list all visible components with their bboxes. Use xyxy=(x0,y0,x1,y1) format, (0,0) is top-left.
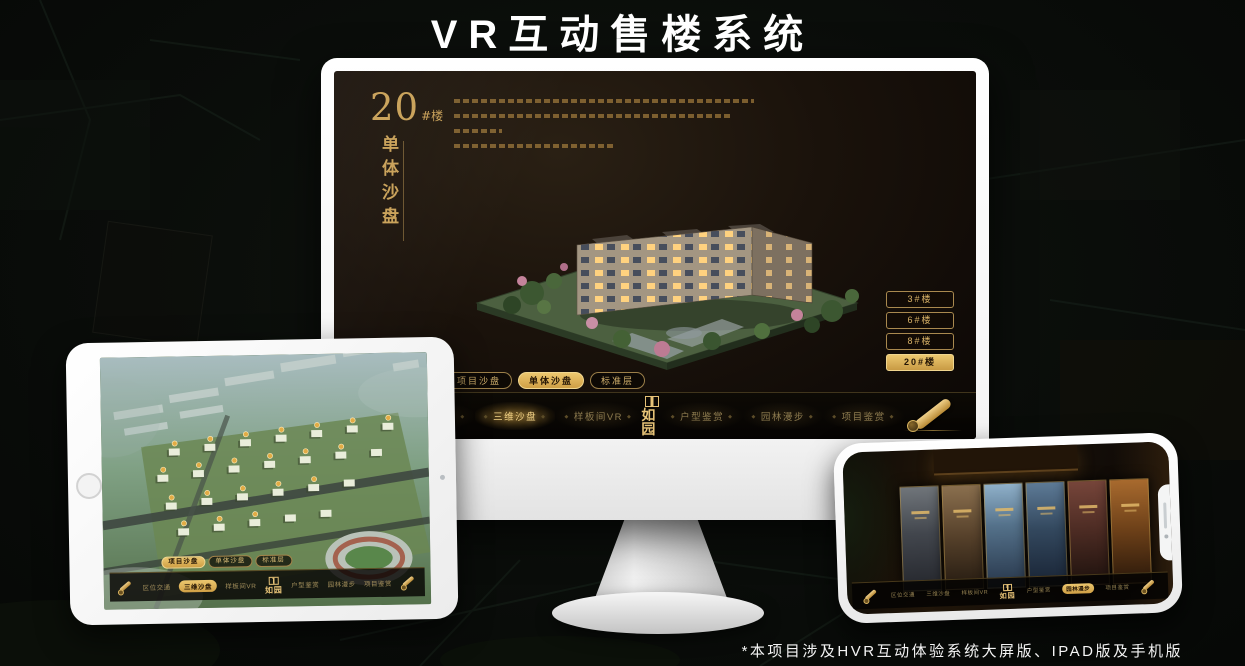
scene-panel-3[interactable] xyxy=(983,482,1026,588)
tablet-map[interactable]: 项目沙盘 单体沙盘 标准层 区位交通 三维沙盘 样板间VR 如园 户型鉴赏 园林… xyxy=(100,352,431,610)
scroll-menu-icon[interactable] xyxy=(1140,577,1157,596)
footnote-text: *本项目涉及HVR互动体验系统大屏版、IPAD版及手机版 xyxy=(742,640,1183,661)
nav-item-3d-sandbox[interactable]: 三维沙盘 xyxy=(926,589,950,598)
scroll-menu-icon[interactable] xyxy=(400,573,416,591)
tablet-subtab-project-sandbox[interactable]: 项目沙盘 xyxy=(161,556,205,569)
nav-item-showroom-vr[interactable]: 样板间VR xyxy=(225,580,256,591)
floor-button-3[interactable]: 3#楼 xyxy=(886,291,954,308)
section-vertical-title: 单体沙盘 xyxy=(376,135,401,231)
scene-panel-4[interactable] xyxy=(1025,481,1068,587)
gold-seal-icon xyxy=(269,576,279,584)
floor-button-8[interactable]: 8#楼 xyxy=(886,333,954,350)
building-headline: 20#楼 xyxy=(370,89,443,126)
nav-item-floorplan[interactable]: 户型鉴赏 xyxy=(662,402,743,430)
nav-item-showroom-vr[interactable]: 样板间VR xyxy=(961,588,988,597)
tablet-nav-bar: 区位交通 三维沙盘 样板间VR 如园 户型鉴赏 园林漫步 项目鉴赏 xyxy=(110,567,425,601)
phone-screen: 区位交通 三维沙盘 样板间VR 如园 户型鉴赏 园林漫步 项目鉴赏 xyxy=(842,441,1173,614)
tablet-subtab-single-sandbox[interactable]: 单体沙盘 xyxy=(208,555,252,568)
brand-name: 如园 xyxy=(1000,591,1016,599)
scene-panel-5[interactable] xyxy=(1067,480,1110,586)
camera-icon xyxy=(1164,534,1168,538)
building-3d-render[interactable] xyxy=(462,163,876,371)
brand-logo: 如园 xyxy=(265,576,283,593)
scroll-menu-icon[interactable] xyxy=(863,587,880,606)
floor-button-6[interactable]: 6#楼 xyxy=(886,312,954,329)
scroll-menu-icon[interactable] xyxy=(904,398,962,434)
nav-label: 样板间VR xyxy=(574,412,623,423)
nav-item-garden-walk[interactable]: 园林漫步 xyxy=(1062,583,1094,594)
brand-logo: 如园 xyxy=(999,583,1016,599)
nav-item-floorplan[interactable]: 户型鉴赏 xyxy=(1027,586,1051,595)
nav-label: 项目鉴赏 xyxy=(842,412,886,423)
scene-panel-2[interactable] xyxy=(941,484,984,590)
scroll-menu-icon[interactable] xyxy=(118,578,134,596)
scene-panel-1[interactable] xyxy=(899,485,942,591)
brand-logo: 如园 xyxy=(641,396,661,437)
nav-item-project-view[interactable]: 项目鉴赏 xyxy=(823,402,904,430)
nav-item-location[interactable]: 区位交通 xyxy=(891,590,915,599)
nav-item-project-view[interactable]: 项目鉴赏 xyxy=(364,578,392,588)
gold-seal-icon xyxy=(645,396,659,407)
nav-item-location[interactable]: 区位交通 xyxy=(143,582,171,592)
sandbox-subtabs: 项目沙盘 单体沙盘 标准层 xyxy=(446,372,645,389)
nav-label: 园林漫步 xyxy=(761,412,805,423)
subtab-project-sandbox[interactable]: 项目沙盘 xyxy=(446,372,512,389)
building-description-lines xyxy=(454,99,754,159)
interior-ceiling-render xyxy=(933,445,1077,476)
tablet-home-button[interactable] xyxy=(76,473,102,499)
tablet-camera-icon xyxy=(440,475,445,480)
subtab-standard-floor[interactable]: 标准层 xyxy=(590,372,645,389)
nav-item-3d-sandbox[interactable]: 三维沙盘 xyxy=(179,580,217,593)
brand-name: 如园 xyxy=(265,585,283,593)
phone-notch xyxy=(1158,484,1174,560)
nav-item-garden-walk[interactable]: 园林漫步 xyxy=(327,578,355,588)
floor-button-20[interactable]: 20#楼 xyxy=(886,354,954,371)
phone-device: 区位交通 三维沙盘 样板间VR 如园 户型鉴赏 园林漫步 项目鉴赏 xyxy=(833,432,1183,624)
tablet-subtabs: 项目沙盘 单体沙盘 标准层 xyxy=(161,554,292,568)
brand-name: 如园 xyxy=(641,409,661,437)
tablet-subtab-standard-floor[interactable]: 标准层 xyxy=(255,554,292,567)
building-number-suffix: #楼 xyxy=(421,109,443,123)
nav-item-showroom-vr[interactable]: 样板间VR xyxy=(555,402,641,430)
nav-item-project-view[interactable]: 项目鉴赏 xyxy=(1105,583,1129,592)
monitor-stand-base xyxy=(552,592,764,634)
gold-divider xyxy=(403,141,404,241)
speaker-icon xyxy=(1163,502,1166,528)
nav-item-floorplan[interactable]: 户型鉴赏 xyxy=(291,579,319,589)
subtab-single-sandbox[interactable]: 单体沙盘 xyxy=(518,372,584,389)
nav-label: 三维沙盘 xyxy=(493,412,537,423)
page-title: VR互动售楼系统 xyxy=(0,2,1245,60)
building-number: 20 xyxy=(370,86,419,129)
floor-button-group: 3#楼 6#楼 8#楼 20#楼 xyxy=(886,291,954,371)
nav-label: 户型鉴赏 xyxy=(680,412,724,423)
nav-item-3d-sandbox[interactable]: 三维沙盘 xyxy=(475,402,556,430)
nav-item-garden-walk[interactable]: 园林漫步 xyxy=(743,402,824,430)
gold-seal-icon xyxy=(1003,583,1012,590)
scene-panel-6[interactable] xyxy=(1109,478,1152,584)
tablet-device: 项目沙盘 单体沙盘 标准层 区位交通 三维沙盘 样板间VR 如园 户型鉴赏 园林… xyxy=(66,337,459,626)
